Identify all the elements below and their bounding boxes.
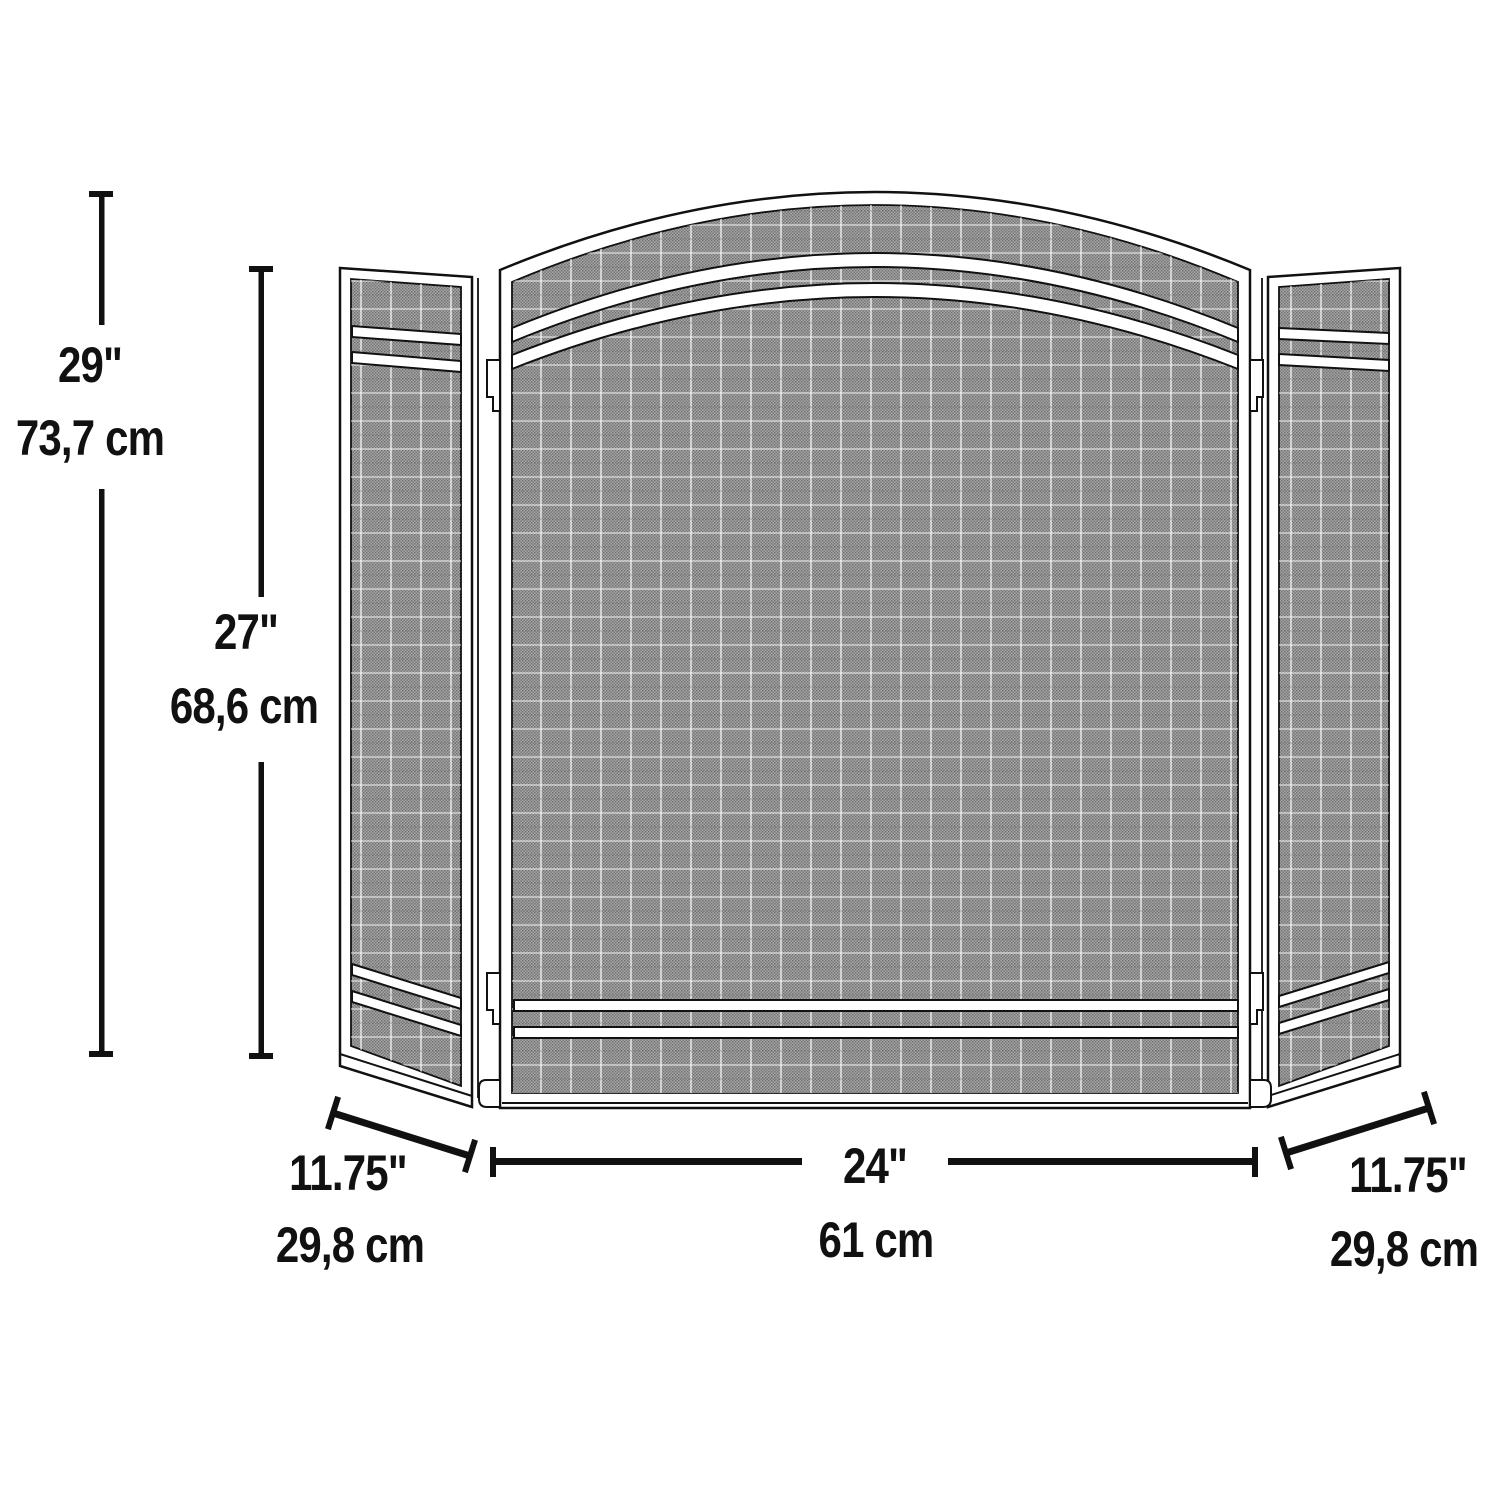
right-panel [1262,268,1400,1107]
left-hinge-foot [479,1080,500,1107]
label-overall-height-cm: 73,7 cm [16,413,164,463]
label-right-width-inches: 11.75" [1349,1150,1467,1200]
label-center-width-cm: 61 cm [819,1215,934,1265]
right-hinge-bottom-knuckle [1250,973,1263,1024]
label-overall-height-inches: 29" [58,340,122,390]
label-left-width-inches: 11.75" [289,1148,407,1198]
right-hinge-top-knuckle [1250,360,1263,411]
diagram-canvas: 29" 73,7 cm 27" 68,6 cm 24" 61 cm 11.75"… [0,0,1500,1500]
left-panel [340,268,478,1107]
center-panel-bottom-bar-1 [514,1000,1238,1011]
right-panel-mesh-grid [1279,279,1389,1086]
dim-line-panel-height [249,266,273,1059]
label-right-width-cm: 29,8 cm [1330,1224,1478,1274]
left-hinge-bottom-knuckle [487,973,500,1024]
center-panel-bottom-bar-2 [514,1027,1238,1038]
screen-drawing [340,192,1400,1108]
label-center-width-inches: 24" [843,1141,907,1191]
fireplace-screen-diagram [0,0,1500,1500]
label-panel-height-cm: 68,6 cm [170,681,318,731]
label-left-width-cm: 29,8 cm [276,1220,424,1270]
label-panel-height-inches: 27" [214,607,278,657]
dim-line-overall-height [89,191,113,1057]
center-panel-mesh-grid [512,205,1238,1093]
center-panel [500,192,1250,1108]
left-panel-mesh-grid [351,279,461,1086]
left-hinge-top-knuckle [487,360,500,411]
right-hinge-foot [1250,1080,1271,1107]
